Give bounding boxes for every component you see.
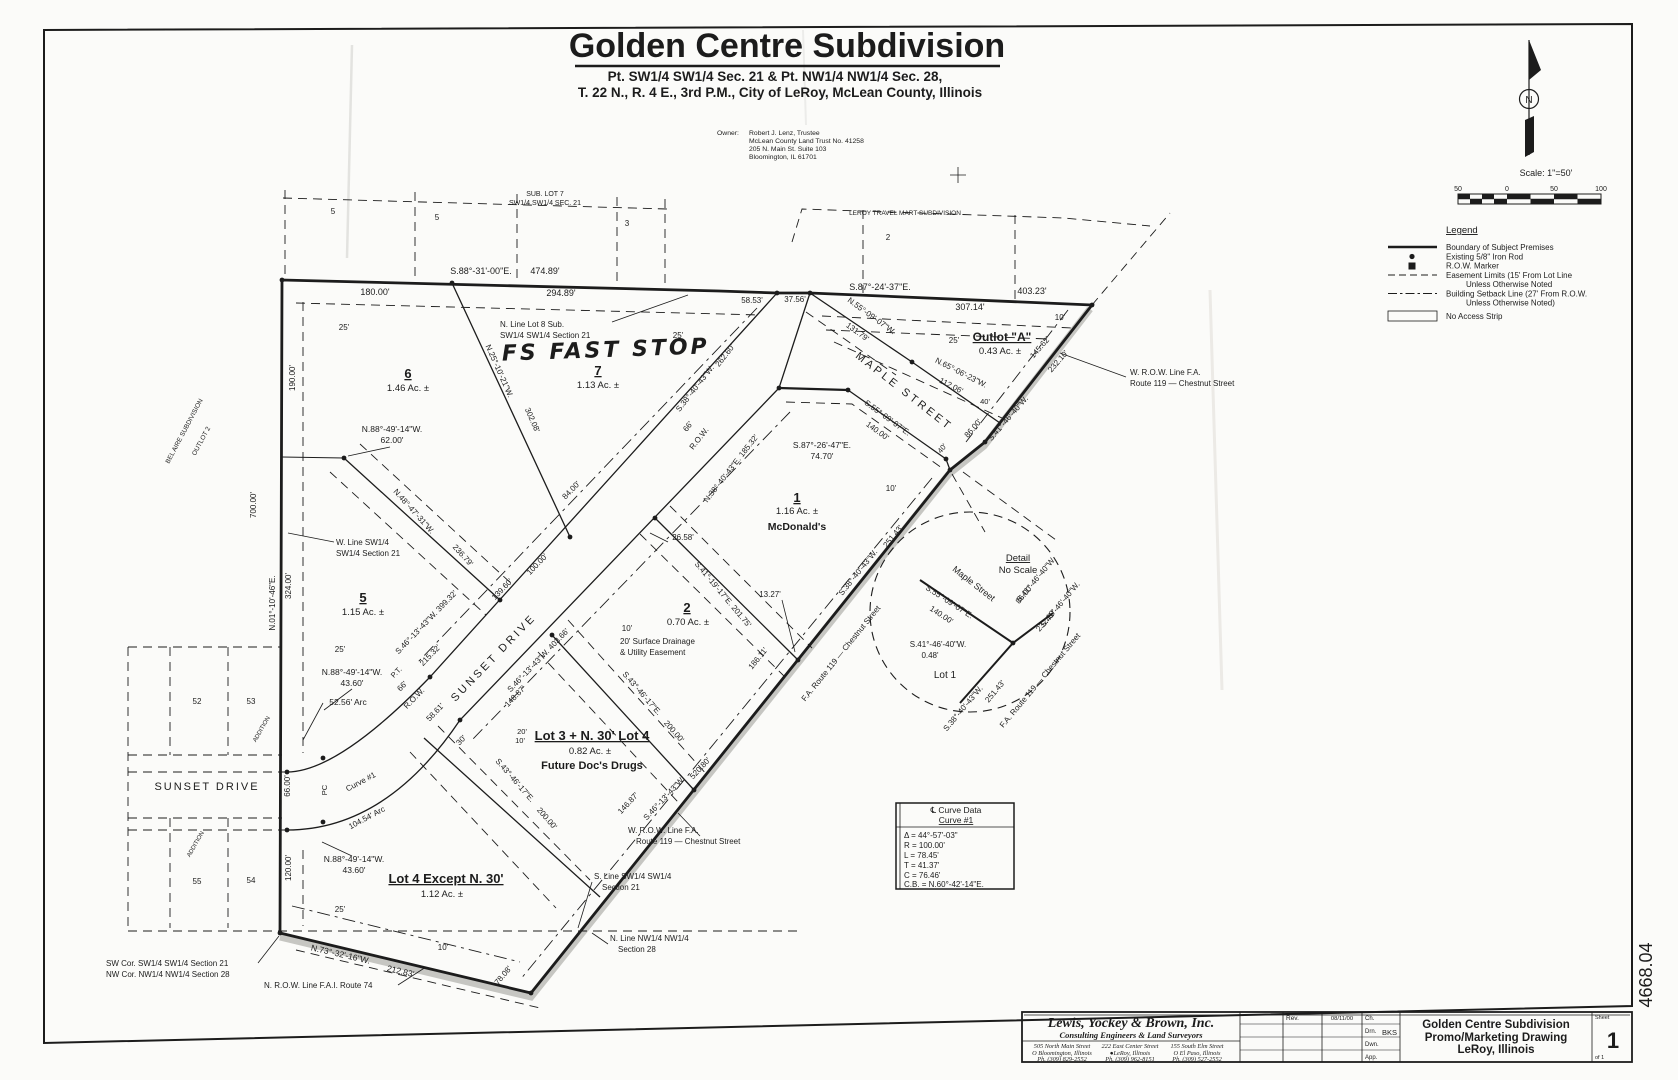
plat-label: N.73°-32'-16"W.: [310, 942, 371, 965]
plat-label: No Scale: [999, 565, 1038, 576]
legend-iron-rod-symbol: [1409, 254, 1414, 259]
plat-label: 20': [517, 727, 527, 736]
plat-label: 1.13 Ac. ±: [577, 380, 619, 391]
plat-label: SUNSET DRIVE: [154, 781, 259, 793]
plat-label: 66': [395, 679, 409, 693]
plat-label: W. R.O.W. Line F.A.: [1130, 368, 1201, 377]
project-title-line: Golden Centre Subdivision: [1422, 1019, 1570, 1031]
plat-label: 86.00': [963, 417, 984, 440]
curve-data-table: ℄ Curve Data Curve #1 Δ = 44°-57'-03" R …: [896, 803, 1014, 889]
plat-label: 55: [193, 877, 202, 886]
legend-item-label: Building Setback Line (27' From R.O.W.: [1446, 290, 1587, 299]
plat-label: S.87°-26'-47"E.: [793, 440, 851, 450]
plat-label: F.A. Route 119 — Chestnut Street: [800, 603, 883, 703]
plat-label: BEL AIRE SUBDIVISION: [165, 397, 205, 464]
plat-label: 74.70': [811, 451, 834, 461]
plat-label: SW1/4 SW1/4 SEC. 21: [509, 200, 581, 207]
plat-labels-layer: SUB. LOT 7SW1/4 SW1/4 SEC. 21553LEROY TR…: [106, 191, 1235, 990]
plat-label: 1.12 Ac. ±: [421, 889, 463, 900]
plat-label: SUB. LOT 7: [526, 191, 564, 198]
plat-label: 186.11': [747, 645, 770, 671]
curve-table-row: Δ = 44°-57'-03": [904, 831, 958, 840]
plat-label: 1.46 Ac. ±: [387, 383, 429, 394]
office-phone: Ph. (309) 962-8151: [1104, 1056, 1155, 1063]
plat-label: 474.89': [530, 266, 560, 276]
plat-label: 26.58': [672, 533, 694, 542]
plat-label: S.87°-24'-37"E.: [849, 282, 911, 292]
legend-item-label2: Unless Otherwise Noted): [1466, 299, 1555, 308]
plat-label: 100.00': [525, 551, 550, 576]
office-phone: Ph. (309) 527-2552: [1171, 1056, 1222, 1063]
plat-label: 10': [438, 943, 449, 952]
plat-label: Lot 4 Except N. 30': [388, 871, 503, 886]
plat-label: Route 119 — Chestnut Street: [1130, 379, 1235, 388]
legend-item-label: Boundary of Subject Premises: [1446, 243, 1554, 252]
rev-date: 08/11/00: [1331, 1016, 1353, 1022]
scanned-plat-sheet: Golden Centre Subdivision Pt. SW1/4 SW1/…: [0, 0, 1678, 1080]
office-street: 222 East Center Street: [1102, 1043, 1159, 1050]
plat-label: 20' Surface Drainage: [620, 637, 695, 646]
scale-text: Scale: 1"=50': [1520, 168, 1573, 178]
plat-drawing: Golden Centre Subdivision Pt. SW1/4 SW1/…: [0, 0, 1678, 1080]
plat-label: Outlot "A": [973, 330, 1032, 344]
plat-label: 700.00': [249, 492, 258, 518]
plat-label: 146.87': [616, 790, 641, 815]
legend-title: Legend: [1446, 225, 1478, 236]
plat-label: 1.15 Ac. ±: [342, 607, 384, 618]
plat-label: Curve #1: [344, 770, 377, 793]
office-phone: Ph. (309) 829-2552: [1036, 1056, 1087, 1063]
plat-label: 307.14': [955, 302, 985, 312]
plat-label: 190.00': [288, 365, 297, 391]
plat-label: ADDITION: [186, 831, 206, 859]
plat-label: Route 119 — Chestnut Street: [636, 837, 741, 846]
plat-label: 25': [673, 331, 684, 340]
plat-label: 84.00': [560, 479, 582, 501]
plat-label: 324.00': [284, 573, 293, 599]
sheet-label: Sheet: [1595, 1015, 1610, 1021]
project-title-line: Promo/Marketing Drawing: [1425, 1032, 1568, 1044]
plat-label: SW1/4 Section 21: [336, 549, 401, 558]
plat-label: S.41°-46'-40"W.: [910, 640, 966, 649]
sheet-number: 1: [1607, 1028, 1619, 1053]
plat-label: 145.62': [1028, 334, 1052, 360]
sign-value: BKS: [1382, 1028, 1397, 1037]
curve-table-row: C.B. = N.60°-42'-14"E.: [904, 880, 984, 889]
plat-label: 25': [339, 323, 350, 332]
owner-line: Robert J. Lenz, Trustee: [749, 130, 820, 137]
plat-label: 52: [193, 697, 202, 706]
scan-artifacts: [347, 30, 1222, 690]
scale-tick: 0: [1505, 186, 1509, 193]
plat-label: 53: [247, 697, 256, 706]
curve-table-row: T = 41.37': [904, 861, 940, 870]
plat-label: 139.60': [490, 576, 515, 601]
plat-label: 2: [683, 600, 690, 615]
plat-label: S.43°-46'-17"E.: [621, 670, 664, 717]
curve-table-row: R = 100.00': [904, 841, 945, 850]
page-subtitle-1: Pt. SW1/4 SW1/4 Sec. 21 & Pt. NW1/4 NW1/…: [608, 69, 943, 84]
plat-label: 232.10': [1034, 607, 1058, 633]
plat-label: Detail: [1006, 553, 1030, 564]
plat-label: 40': [980, 397, 990, 406]
plat-label: SW Cor. SW1/4 SW1/4 Section 21: [106, 959, 229, 968]
plat-label: 120.00': [284, 855, 293, 881]
plat-label: S.46°-13'-43"W. 399.32': [394, 588, 460, 656]
owner-label: Owner:: [717, 130, 739, 137]
plat-label: 13.27': [759, 590, 781, 599]
plat-label: 78.08': [493, 964, 514, 987]
plat-label: Lot 1: [934, 670, 957, 681]
curve-table-subtitle: Curve #1: [939, 815, 974, 825]
owner-line: McLean County Land Trust No. 41258: [749, 138, 864, 145]
plat-label: NW Cor. NW1/4 NW1/4 Section 28: [106, 970, 230, 979]
plat-label: 0.70 Ac. ±: [667, 617, 709, 628]
legend-item-label: Easement Limits (15' From Lot Line: [1446, 271, 1573, 280]
plat-label: 10': [886, 484, 897, 493]
legend-item-label: R.O.W. Marker: [1446, 262, 1499, 271]
scale-tick: 50: [1454, 186, 1462, 193]
plat-label: 62.00': [381, 435, 404, 445]
plat-label: 1: [793, 490, 800, 505]
plat-label: N.88°-49'-14"W.: [324, 854, 384, 864]
plat-label: 0.82 Ac. ±: [569, 746, 611, 757]
legend-item-label: Existing 5/8" Iron Rod: [1446, 253, 1523, 262]
plat-label: 5: [435, 213, 440, 222]
plat-label: 1.16 Ac. ±: [776, 506, 818, 517]
plat-label: 3: [625, 219, 630, 228]
firm-name: Lewis, Yockey & Brown, Inc.: [1047, 1016, 1215, 1031]
plat-label: & Utility Easement: [620, 648, 686, 657]
scale-tick: 50: [1550, 186, 1558, 193]
sign-label: Ch.: [1365, 1016, 1375, 1022]
plat-label: 58.61': [424, 701, 446, 723]
page-subtitle-2: T. 22 N., R. 4 E., 3rd P.M., City of LeR…: [578, 85, 982, 100]
plat-label: 180.00': [360, 287, 390, 297]
plat-label: 54: [247, 876, 256, 885]
legend-row-marker-symbol: [1409, 263, 1416, 270]
north-arrow-icon: N: [1520, 40, 1542, 157]
plat-label: 25': [949, 336, 960, 345]
plat-label: N.88°-49'-14"W.: [322, 667, 382, 677]
curve-table-row: L = 78.45': [904, 851, 939, 860]
plat-label: N.01°-10'-46"E.: [268, 575, 277, 630]
sheet-of: of 1: [1595, 1055, 1604, 1061]
plat-label: Section 21: [602, 883, 640, 892]
plat-label: S. Line SW1/4 SW1/4: [594, 872, 672, 881]
job-number: 4668.04: [1636, 942, 1656, 1007]
plat-label: Section 28: [618, 945, 656, 954]
plat-label: Maple Street: [951, 564, 998, 604]
plat-label: 66.00': [283, 775, 292, 797]
plat-label: N. Line Lot 8 Sub.: [500, 320, 564, 329]
plat-label: PC: [320, 784, 329, 795]
header: Golden Centre Subdivision Pt. SW1/4 SW1/…: [569, 27, 1005, 161]
plat-label: 43.60': [341, 678, 364, 688]
plat-label: OUTLOT 2: [191, 425, 212, 457]
plat-label: P.T.: [389, 665, 404, 680]
plat-label: 30': [454, 733, 468, 747]
plat-label: 10': [622, 624, 633, 633]
plat-label: S.38°-40'-43"W.: [941, 684, 984, 733]
plat-label: 52.56' Arc: [329, 697, 367, 707]
plat-label: W. R.O.W. Line F.A.: [628, 826, 699, 835]
north-arrow-label: N: [1525, 95, 1532, 106]
plat-label: 6: [404, 366, 411, 381]
plat-label: 5: [331, 207, 336, 216]
plat-label: 25': [335, 905, 346, 914]
office-street: 505 North Main Street: [1034, 1043, 1091, 1050]
plat-label: 10': [1055, 313, 1066, 322]
plat-label: 262.60': [713, 342, 736, 368]
plat-label: 104.54' Arc: [347, 804, 386, 831]
plat-label: 37.56': [784, 295, 806, 304]
sign-label: Drn.: [1365, 1029, 1377, 1035]
sign-label: App.: [1365, 1055, 1378, 1061]
office-street: 155 South Elm Street: [1170, 1043, 1223, 1050]
plat-label: S.88°-31'-00"E.: [450, 266, 512, 276]
plat-label: 58.53': [741, 296, 763, 305]
owner-line: 205 N. Main St. Suite 103: [749, 146, 827, 153]
firm-subtitle: Consulting Engineers & Land Surveyors: [1059, 1030, 1203, 1040]
plat-label: R.O.W.: [402, 686, 426, 711]
title-block: Lewis, Yockey & Brown, Inc. Consulting E…: [1022, 942, 1656, 1063]
plat-label: 0.48': [921, 651, 939, 660]
plat-label: 66': [681, 419, 695, 433]
plat-label: 112.06': [938, 376, 965, 396]
owner-line: Bloomington, IL 61701: [749, 154, 817, 161]
plat-label: McDonald's: [768, 521, 827, 533]
curve-table-row: C = 76.46': [904, 871, 941, 880]
legend-item-label2: Unless Otherwise Noted: [1466, 280, 1552, 289]
legend-no-access-symbol: [1388, 311, 1437, 321]
plat-label: W. Line SW1/4: [336, 538, 389, 547]
plat-label: Future Doc's Drugs: [541, 760, 643, 772]
curve-table-title: ℄ Curve Data: [930, 805, 982, 815]
plat-label: N. R.O.W. Line F.A.I. Route 74: [264, 981, 373, 990]
scale-bar: Scale: 1"=50' 50 0 50 100: [1454, 168, 1607, 204]
page-title: Golden Centre Subdivision: [569, 27, 1005, 65]
plat-label: 403.23': [1017, 286, 1047, 296]
plat-label: 7: [594, 363, 601, 378]
scale-tick: 100: [1595, 186, 1607, 193]
plat-label: 200.00': [662, 719, 686, 745]
plat-label: 251.43': [983, 678, 1007, 704]
plat-label: 215.32': [418, 642, 443, 667]
plat-label: 2: [886, 233, 891, 242]
plat-label: 294.89': [546, 288, 576, 298]
plat-label: 10': [515, 736, 525, 745]
legend-item-label: No Access Strip: [1446, 312, 1503, 321]
plat-label: ADDITION: [252, 716, 272, 744]
plat-label: N.38°-40'-43"E. 185.32': [702, 432, 761, 504]
plat-label: N.48°-47'-31"W.: [391, 487, 436, 535]
plat-label: LEROY TRAVEL MART SUBDIVISION: [849, 210, 961, 217]
plat-label: 302.08': [523, 406, 542, 434]
plat-label: 25': [335, 645, 346, 654]
plat-label: N.88°-49'-14"W.: [362, 424, 422, 434]
plat-label: Lot 3 + N. 30' Lot 4: [535, 728, 650, 743]
legend: Legend Boundary of Subject Premises Exis…: [1388, 225, 1587, 321]
plat-label: 5: [359, 590, 366, 605]
plat-label: S.43°-46'-17"E.: [494, 757, 537, 804]
plat-label: N. Line NW1/4 NW1/4: [610, 934, 689, 943]
plat-label: 43.60': [343, 865, 366, 875]
project-title-line: LeRoy, Illinois: [1457, 1044, 1534, 1056]
sign-label: Dwn.: [1365, 1042, 1379, 1048]
plat-label: 0.43 Ac. ±: [979, 346, 1021, 357]
rev-label: Rev.: [1286, 1015, 1299, 1022]
